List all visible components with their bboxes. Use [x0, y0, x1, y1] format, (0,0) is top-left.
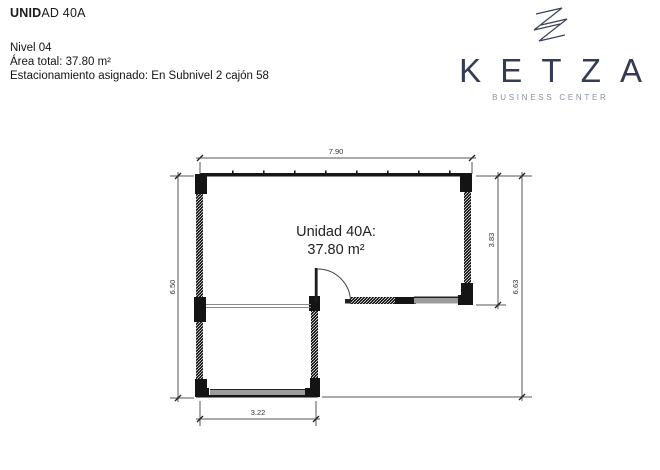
info-parking: Estacionamiento asignado: En Subnivel 2 … — [10, 69, 430, 83]
dimension-top — [196, 155, 476, 174]
window-strip-bottom — [210, 390, 306, 395]
door-swing-arc — [318, 269, 351, 302]
dim-label-right-outer: 6.63 — [511, 280, 520, 295]
window-strip-right — [414, 298, 462, 304]
dim-label-bottom: 3.22 — [251, 408, 266, 417]
info-area: Área total: 37.80 m² — [10, 55, 430, 69]
ketza-logo: KETZA BUSINESS CENTER — [440, 2, 658, 102]
floor-plan-drawing: 7.90 6.50 3.83 6.63 — [0, 130, 660, 460]
wall-lower-room-bottom — [196, 388, 318, 398]
ketza-tagline: BUSINESS CENTER — [440, 93, 658, 102]
info-level: Nivel 04 — [10, 41, 430, 55]
floor-plan-sheet: UNIDAD 40A Nivel 04 Área total: 37.80 m²… — [0, 0, 660, 470]
wall-top — [200, 171, 472, 177]
door-stop — [345, 299, 351, 304]
dimension-right-inner — [476, 172, 532, 309]
unit-title-rest: AD 40A — [41, 6, 85, 20]
column-top-right — [460, 174, 472, 192]
door-leaf — [315, 268, 318, 303]
wall-left — [194, 174, 207, 397]
ketza-zigzag-icon — [524, 2, 574, 48]
wall-interior — [309, 296, 320, 397]
room-label-line1: Unidad 40A: — [296, 224, 376, 240]
header: UNIDAD 40A Nivel 04 Área total: 37.80 m²… — [10, 6, 430, 83]
wall-right — [460, 174, 473, 305]
dim-label-right-inner: 3.83 — [487, 233, 496, 248]
column-top-left — [195, 174, 207, 194]
room-label: Unidad 40A: 37.80 m² — [296, 224, 376, 258]
dim-label-left: 6.50 — [168, 280, 177, 295]
ketza-wordmark: KETZA — [440, 52, 658, 90]
dim-label-top: 7.90 — [329, 147, 344, 156]
entry-door — [315, 268, 351, 304]
dimension-right-outer — [322, 172, 532, 401]
column-mid-left — [194, 297, 206, 322]
room-label-line2: 37.80 m² — [307, 242, 364, 258]
unit-title-bold: UNID — [10, 6, 41, 20]
window-frame-line — [414, 297, 462, 299]
beam-line — [206, 305, 311, 308]
wall-upper-room-bottom — [350, 295, 472, 305]
unit-title: UNIDAD 40A — [10, 6, 430, 20]
facade-mullion-ticks — [232, 171, 451, 174]
unit-info: Nivel 04 Área total: 37.80 m² Estacionam… — [10, 41, 430, 83]
